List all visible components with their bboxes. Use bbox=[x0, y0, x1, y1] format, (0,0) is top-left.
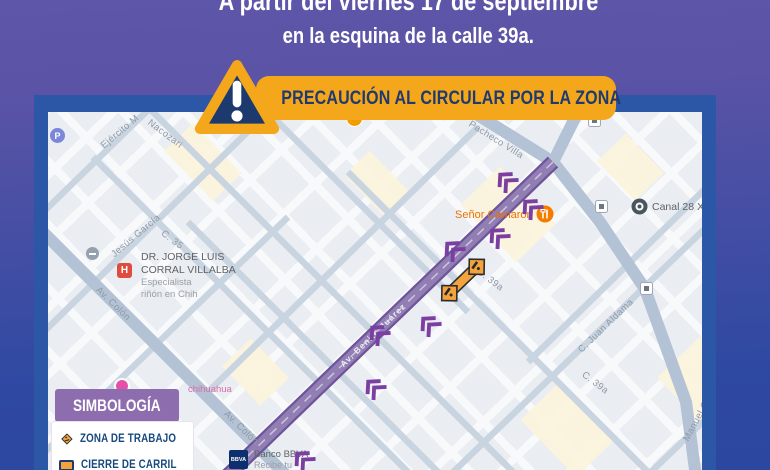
hospital-label: DR. JORGE LUIS CORRAL VILLALBA Especiali… bbox=[141, 251, 236, 300]
station-minus-icon bbox=[86, 247, 99, 260]
warning-banner: PRECAUCIÓN AL CIRCULAR POR LA ZONA bbox=[256, 76, 616, 120]
lane-closure-icon bbox=[59, 460, 74, 470]
headline: A partir del viernes 17 de septiembre en… bbox=[0, 0, 770, 49]
legend-panel: ZONA DE TRABAJO CIERRE DE CARRIL bbox=[52, 422, 193, 470]
map-frame: P H DR. JORGE LUIS CORRAL VILLALBA Espec… bbox=[34, 95, 716, 470]
tv-station-label: Canal 28 XHA bbox=[652, 201, 702, 213]
headline-line1: A partir del viernes 17 de septiembre bbox=[218, 0, 598, 17]
headline-line2: en la esquina de la calle 39a. bbox=[282, 23, 533, 49]
transit-stop-icon bbox=[595, 200, 608, 213]
legend-item-work-zone: ZONA DE TRABAJO bbox=[61, 429, 193, 449]
hospital-icon: H bbox=[117, 263, 132, 278]
warning-triangle-icon bbox=[194, 59, 280, 135]
transit-stop-icon bbox=[640, 282, 653, 295]
work-zone-diamond-icon bbox=[61, 429, 73, 449]
street-map: P H DR. JORGE LUIS CORRAL VILLALBA Espec… bbox=[48, 112, 702, 470]
legend-item-lane-closure: CIERRE DE CARRIL bbox=[61, 455, 193, 470]
pink-place-label: chihuahua bbox=[188, 384, 232, 395]
traffic-advisory-poster: A partir del viernes 17 de septiembre en… bbox=[0, 0, 770, 470]
warning-banner-text: PRECAUCIÓN AL CIRCULAR POR LA ZONA bbox=[281, 87, 621, 110]
bank-logo-icon: BBVA bbox=[229, 450, 248, 469]
tv-station-icon bbox=[631, 198, 648, 215]
parking-icon: P bbox=[50, 128, 65, 143]
legend-title: SIMBOLOGÍA bbox=[55, 389, 179, 422]
work-zone-icon bbox=[423, 240, 503, 320]
